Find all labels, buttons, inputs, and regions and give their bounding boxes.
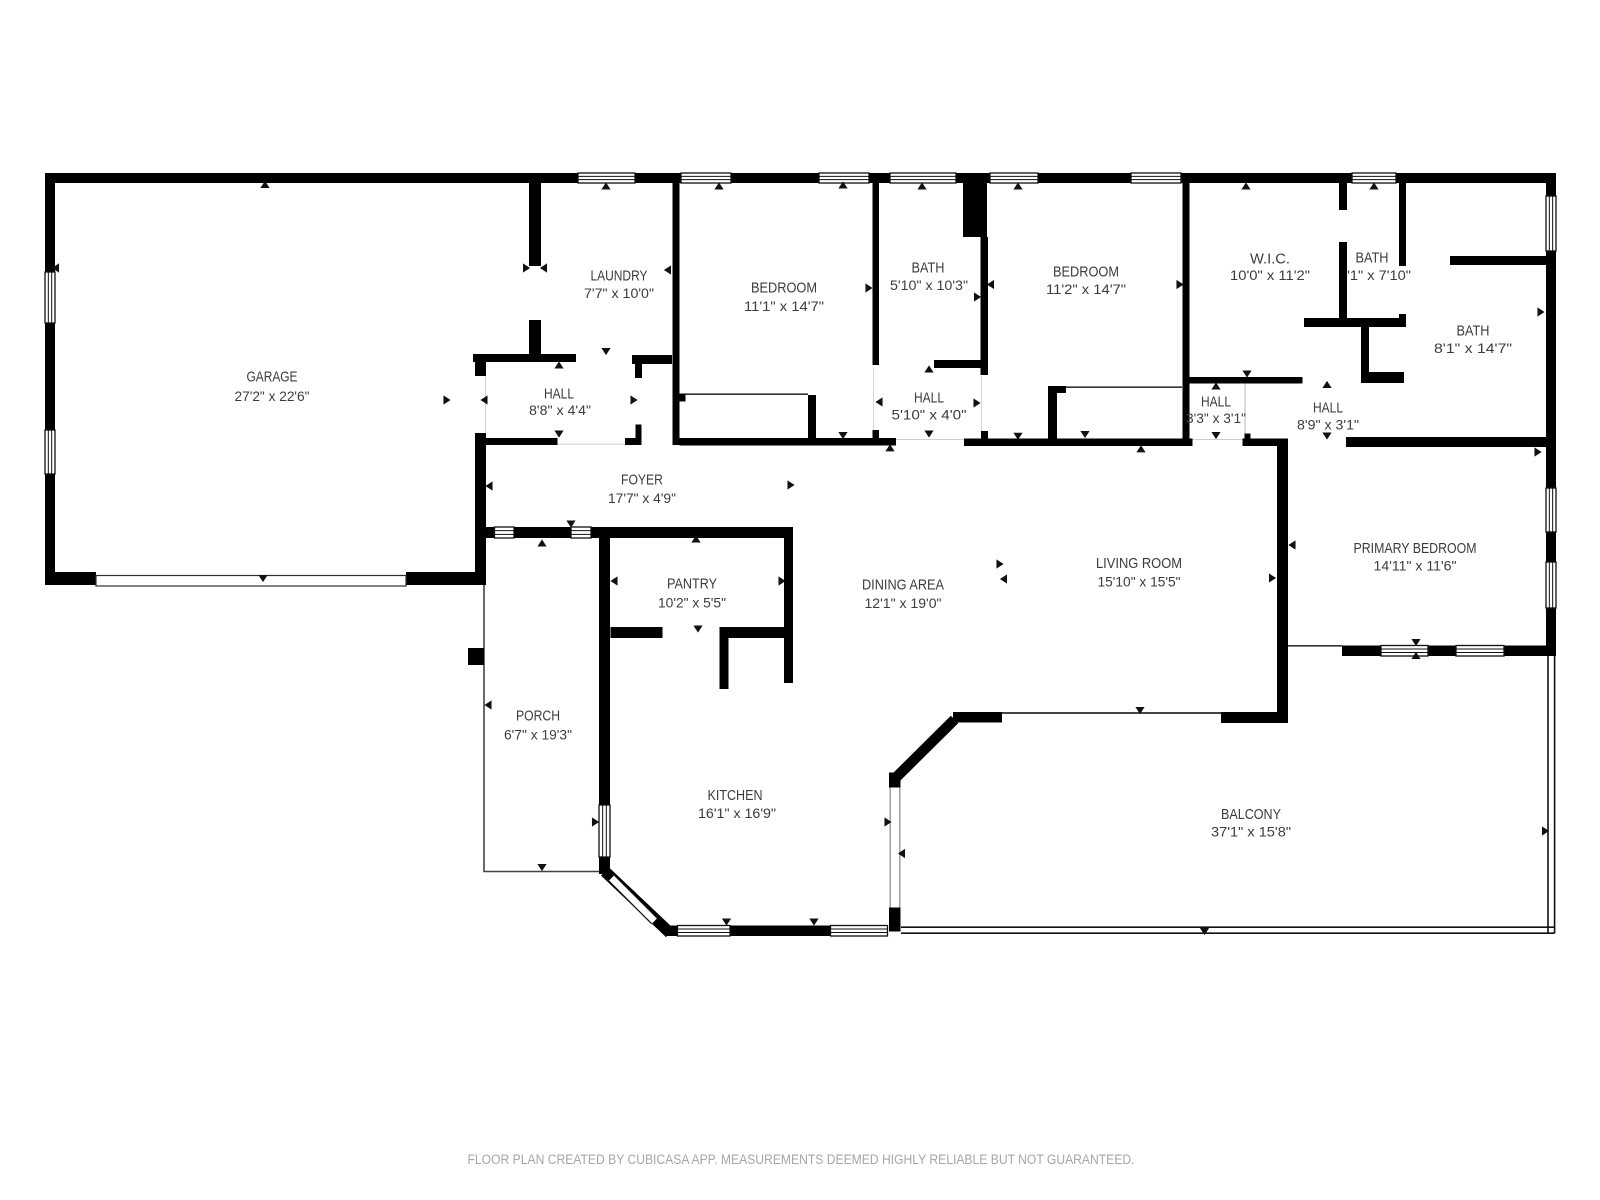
svg-text:8'8" x 4'4": 8'8" x 4'4" [529,402,591,418]
svg-text:GARAGE: GARAGE [247,370,298,386]
svg-text:W.I.C.: W.I.C. [1250,252,1290,268]
svg-text:14'11" x 11'6": 14'11" x 11'6" [1374,558,1457,574]
svg-text:8'9" x 3'1": 8'9" x 3'1" [1297,417,1359,433]
svg-text:PANTRY: PANTRY [667,577,717,593]
svg-text:LIVING ROOM: LIVING ROOM [1096,556,1182,572]
svg-text:BEDROOM: BEDROOM [751,281,817,297]
svg-text:LAUNDRY: LAUNDRY [591,269,648,285]
svg-text:PRIMARY BEDROOM: PRIMARY BEDROOM [1354,541,1477,557]
svg-text:10'2" x 5'5": 10'2" x 5'5" [658,595,726,611]
svg-text:PORCH: PORCH [516,709,560,725]
svg-text:HALL: HALL [914,391,944,407]
svg-text:6'7" x 19'3": 6'7" x 19'3" [504,727,572,743]
svg-text:BATH: BATH [912,261,945,277]
svg-text:37'1" x 15'8": 37'1" x 15'8" [1211,824,1291,840]
svg-text:27'2" x 22'6": 27'2" x 22'6" [235,388,310,404]
svg-text:FOYER: FOYER [621,473,663,489]
svg-text:5'10" x 10'3": 5'10" x 10'3" [890,277,968,293]
svg-text:HALL: HALL [544,387,574,403]
svg-text:DINING AREA: DINING AREA [862,578,944,594]
svg-text:16'1" x 16'9": 16'1" x 16'9" [698,805,776,821]
svg-text:BALCONY: BALCONY [1221,807,1281,823]
svg-text:BEDROOM: BEDROOM [1053,265,1119,281]
svg-text:11'2" x 14'7": 11'2" x 14'7" [1046,281,1126,297]
svg-text:HALL: HALL [1313,401,1343,417]
svg-text:BATH: BATH [1356,251,1389,267]
svg-text:KITCHEN: KITCHEN [708,788,763,804]
svg-text:BATH: BATH [1457,324,1490,340]
svg-text:10'0" x 11'2": 10'0" x 11'2" [1230,267,1310,283]
svg-text:3'3" x 3'1": 3'3" x 3'1" [1186,410,1246,426]
svg-text:8'1" x 14'7": 8'1" x 14'7" [1434,340,1512,356]
svg-text:HALL: HALL [1201,395,1231,411]
svg-text:11'1" x 14'7": 11'1" x 14'7" [744,298,824,314]
svg-text:7'7" x 10'0": 7'7" x 10'0" [584,285,654,301]
svg-text:17'7" x 4'9": 17'7" x 4'9" [608,490,676,506]
svg-text:5'10" x 4'0": 5'10" x 4'0" [892,407,967,423]
svg-text:3'1" x 7'10": 3'1" x 7'10" [1339,267,1411,283]
svg-text:15'10" x 15'5": 15'10" x 15'5" [1098,574,1181,590]
svg-text:FLOOR PLAN CREATED BY CUBICASA: FLOOR PLAN CREATED BY CUBICASA APP. MEAS… [468,1152,1135,1167]
svg-text:12'1" x 19'0": 12'1" x 19'0" [865,595,942,611]
